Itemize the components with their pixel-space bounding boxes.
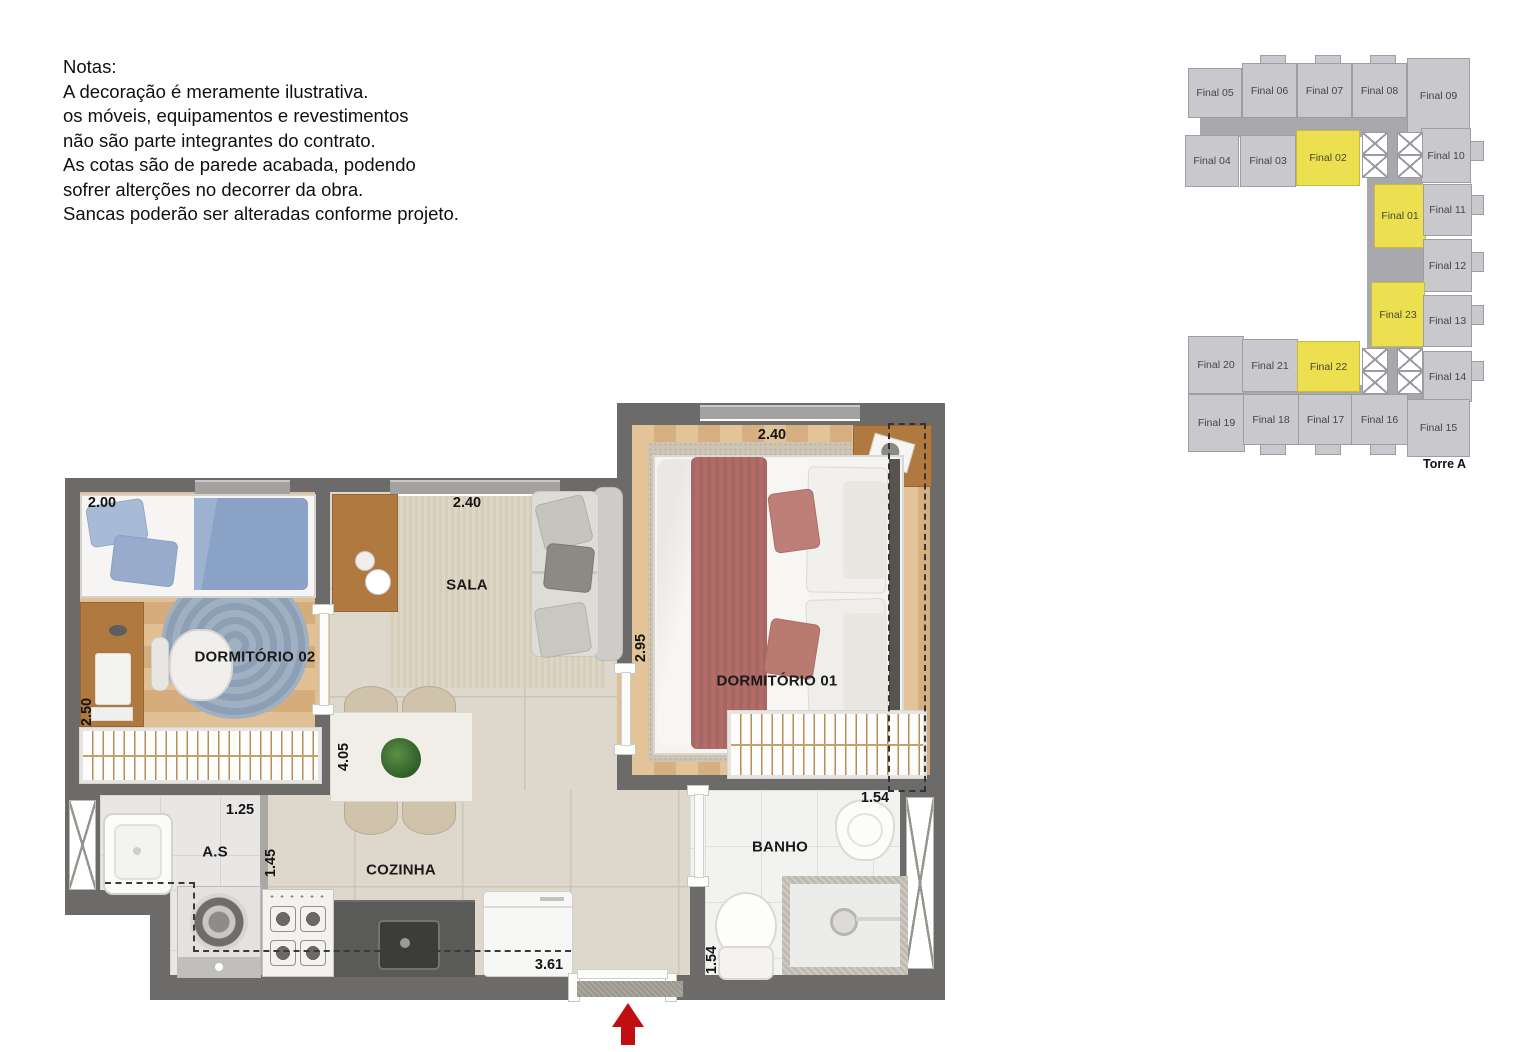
bed-pillow	[843, 481, 887, 579]
elevator-icon	[1362, 132, 1388, 155]
keyplan-unit-final-14: Final 14	[1423, 351, 1472, 402]
chair-back	[151, 637, 169, 691]
elevator-icon	[1362, 371, 1388, 394]
wall	[315, 492, 330, 612]
page: Notas: A decoração é meramente ilustrati…	[0, 0, 1536, 1052]
notes-line: Sancas poderão ser alteradas conforme pr…	[63, 202, 459, 227]
entry-arrow-icon	[612, 1003, 644, 1027]
room-label-dormitorio01: DORMITÓRIO 01	[717, 673, 838, 690]
keyplan-unit-final-11: Final 11	[1423, 184, 1472, 236]
keyplan-unit-final-17: Final 17	[1298, 394, 1353, 445]
bed-duvet	[194, 498, 308, 590]
keyplan-unit-final-20: Final 20	[1188, 336, 1244, 394]
wardrobe-projection	[888, 423, 926, 792]
keyplan-unit-final-19: Final 19	[1188, 394, 1245, 452]
bathroom-sink	[835, 799, 895, 861]
fridge-handle	[540, 897, 564, 901]
tank-drain	[133, 847, 141, 855]
balcony-tab	[1469, 141, 1484, 161]
wall	[150, 975, 575, 1000]
dorm01-door	[621, 672, 631, 746]
keyplan-unit-final-18: Final 18	[1243, 394, 1299, 445]
dim-cozinha-depth: 4.05	[336, 743, 352, 771]
washer-knob	[215, 963, 223, 971]
keyplan-unit-final-05: Final 05	[1188, 68, 1242, 118]
banho-door	[694, 794, 704, 878]
keyplan-unit-final-08: Final 08	[1352, 63, 1407, 118]
keyplan-unit-final-21: Final 21	[1242, 339, 1298, 392]
room-label-cozinha: COZINHA	[366, 862, 436, 879]
plant	[381, 738, 421, 778]
notes-line: os móveis, equipamentos e revestimentos	[63, 104, 459, 129]
keyplan-unit-final-02: Final 02	[1296, 130, 1360, 186]
elevator-icon	[1397, 371, 1423, 394]
washing-machine	[177, 886, 261, 978]
keyplan-unit-final-10: Final 10	[1421, 128, 1471, 183]
cabinet-projection	[105, 882, 195, 884]
keyplan-unit-final-09: Final 09	[1407, 58, 1470, 133]
notes-line: não são parte integrantes do contrato.	[63, 129, 459, 154]
stove-burner	[270, 906, 296, 932]
dim-as-width: 1.25	[226, 802, 254, 818]
stove-knobs	[267, 893, 327, 900]
as-window	[69, 800, 96, 890]
notes-line: A decoração é meramente ilustrativa.	[63, 80, 459, 105]
floor-plan: DORMITÓRIO 02 SALA DORMITÓRIO 01 A.S COZ…	[65, 395, 945, 1052]
dim-dorm02-depth: 2.50	[79, 698, 95, 726]
dorm02-door	[319, 613, 329, 706]
dim-dorm02-width: 2.00	[88, 495, 116, 511]
fridge-door-line	[484, 906, 572, 908]
dim-banho-width: 1.54	[861, 790, 889, 806]
keyplan-unit-final-04: Final 04	[1185, 135, 1239, 187]
keyplan-unit-final-13: Final 13	[1423, 295, 1472, 347]
stove-burner	[270, 940, 296, 966]
entry-mat	[577, 981, 683, 997]
computer-mouse	[109, 625, 127, 636]
double-bed	[653, 455, 904, 755]
keyplan-unit-final-23: Final 23	[1371, 282, 1425, 347]
dim-dorm01-depth: 2.95	[633, 634, 649, 662]
banho-window	[906, 797, 934, 969]
room-label-sala: SALA	[446, 577, 488, 594]
accent-cushion	[763, 617, 821, 680]
keyplan-unit-final-12: Final 12	[1423, 239, 1472, 292]
notes-line: sofrer alterções no decorrer da obra.	[63, 178, 459, 203]
entry-arrow-icon	[621, 1025, 635, 1045]
dim-banho-depth: 1.54	[704, 946, 720, 974]
notes-line: As cotas são de parede acabada, podendo	[63, 153, 459, 178]
shower-drain	[830, 908, 858, 936]
keyplan-unit-final-15: Final 15	[1407, 399, 1470, 457]
entry-door	[577, 969, 668, 979]
keyplan-unit-final-03: Final 03	[1240, 135, 1296, 187]
shower-hose	[856, 917, 900, 921]
keyplan-unit-final-16: Final 16	[1351, 394, 1408, 445]
notes-title: Notas:	[63, 55, 459, 80]
decor-bowl	[365, 569, 391, 595]
dim-sala-width: 2.40	[453, 495, 481, 511]
sideboard	[332, 494, 398, 612]
faucet	[400, 938, 410, 948]
room-label-dormitorio02: DORMITÓRIO 02	[195, 649, 316, 666]
sofa-pillow	[543, 543, 596, 594]
sofa-pillow	[533, 601, 592, 659]
wall	[668, 975, 945, 1000]
key-plan: Final 05 Final 06 Final 07 Final 08 Fina…	[1185, 55, 1497, 477]
tower-label: Torre A	[1423, 457, 1466, 471]
keyplan-unit-final-22: Final 22	[1297, 341, 1360, 392]
elevator-icon	[1397, 155, 1423, 178]
keyboard	[95, 653, 131, 705]
elevator-icon	[1397, 132, 1423, 155]
shower-area	[782, 876, 908, 975]
keyplan-unit-final-06: Final 06	[1242, 63, 1297, 118]
dim-as-depth: 1.45	[263, 849, 279, 877]
stove-burner	[300, 940, 326, 966]
bed-pillow	[109, 534, 178, 587]
accent-cushion	[767, 488, 821, 554]
dining-chair	[344, 797, 398, 835]
bed-pillow	[843, 613, 887, 711]
stove	[262, 889, 334, 977]
elevator-icon	[1397, 348, 1423, 371]
decor-vase	[355, 551, 375, 571]
cabinet-projection	[193, 950, 571, 952]
dining-chair	[402, 797, 456, 835]
wardrobe	[80, 728, 321, 783]
desk-papers	[91, 707, 133, 721]
stove-burner	[300, 906, 326, 932]
room-label-banho: BANHO	[752, 839, 808, 856]
keyplan-unit-final-07: Final 07	[1297, 63, 1352, 118]
bed-throw	[691, 457, 767, 749]
room-label-as: A.S	[202, 844, 228, 861]
kitchen-counter	[330, 900, 475, 977]
notes-block: Notas: A decoração é meramente ilustrati…	[63, 55, 459, 227]
cabinet-projection	[193, 882, 195, 952]
dim-dorm01-width: 2.40	[758, 427, 786, 443]
elevator-icon	[1362, 348, 1388, 371]
sofa	[531, 487, 621, 659]
washer-door	[190, 893, 248, 951]
dim-cozinha-width: 3.61	[535, 957, 563, 973]
elevator-icon	[1362, 155, 1388, 178]
sink-basin	[847, 813, 883, 847]
toilet-tank	[718, 946, 774, 980]
window	[700, 405, 860, 421]
keyplan-unit-final-01: Final 01	[1374, 184, 1426, 248]
